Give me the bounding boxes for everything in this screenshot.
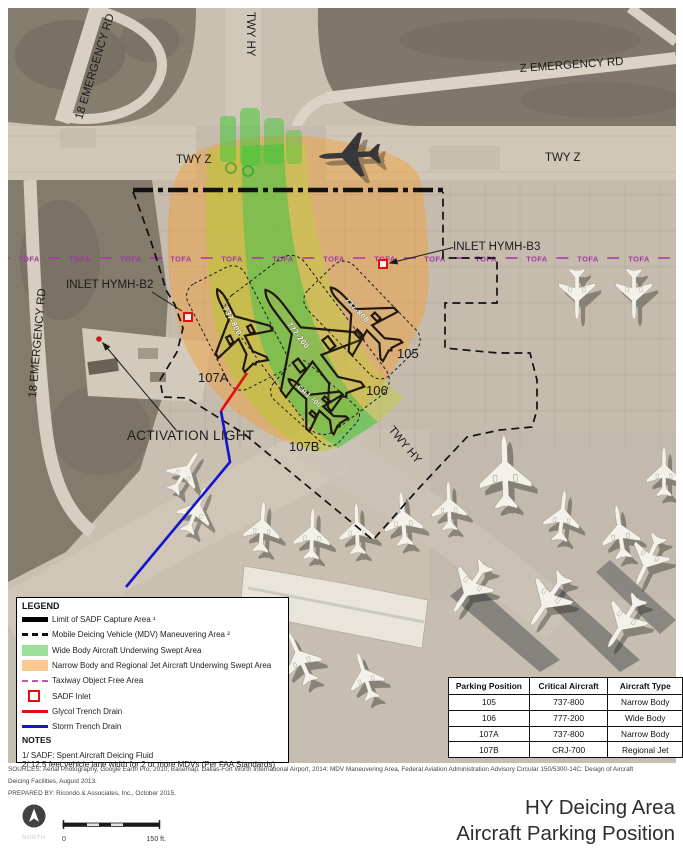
narrowbody-fill-swatch [22,660,48,671]
table-cell: 737-800 [529,695,608,711]
legend-item-label: Limit of SADF Capture Area ¹ [52,615,156,624]
sadf-inlet-b3 [379,260,387,268]
legend-item-label: SADF Inlet [52,692,91,701]
tofa-label: TOFA [475,255,497,264]
map-title: HY Deicing Area Aircraft Parking Positio… [456,795,675,847]
sadf-inlet-b2 [184,313,192,321]
parking-table: Parking PositionCritical AircraftAircraf… [448,677,683,758]
table-cell: Narrow Body [608,695,683,711]
sources-line-1: SOURCES: Aerial Photography, Google Eart… [8,764,633,776]
table-cell: Narrow Body [608,726,683,742]
table-cell: 107B [449,742,530,758]
storm-line-swatch [22,725,48,728]
legend-item-label: Glycol Trench Drain [52,707,122,716]
legend-item: Wide Body Aircraft Underwing Swept Area [22,643,283,658]
table-row: 107A737-800Narrow Body [449,726,683,742]
legend-item-label: Wide Body Aircraft Underwing Swept Area [52,646,201,655]
sources-line-2: Deicing Facilities, August 2013. [8,776,633,788]
tofa-label: TOFA [221,255,243,264]
legend-items: Limit of SADF Capture Area ¹Mobile Deici… [22,612,283,734]
table-row: 106777-200Wide Body [449,710,683,726]
table-header: Critical Aircraft [529,678,608,695]
road-label-twy-z-right: TWY Z [545,152,581,164]
notes-title: NOTES [22,735,283,745]
parking-label-107b: 107B [289,439,319,454]
scale-bar: 0 150 ft. [62,817,166,846]
glycol-line-swatch [22,710,48,713]
note-line: 1/ SADF: Spent Aircraft Deicing Fluid [22,751,283,760]
legend-item: Taxiway Object Free Area [22,673,283,688]
activation-light-marker [96,336,102,342]
table-cell: 106 [449,710,530,726]
tofa-label: TOFA [120,255,142,264]
legend-item-label: Narrow Body and Regional Jet Aircraft Un… [52,661,271,670]
road-label-twy-z-left: TWY Z [176,154,212,166]
table-header: Parking Position [449,678,530,695]
sadf-inlet-swatch [28,690,40,702]
legend-item: Limit of SADF Capture Area ¹ [22,612,283,627]
scale-bar-icon [62,820,162,830]
legend-item-label: Mobile Deicing Vehicle (MDV) Maneuvering… [52,630,230,639]
north-label: NORTH [20,835,48,841]
legend-box: LEGEND Limit of SADF Capture Area ¹Mobil… [16,597,289,763]
legend-title: LEGEND [22,601,283,611]
table-cell: Regional Jet [608,742,683,758]
legend-item-label: Taxiway Object Free Area [52,676,143,685]
legend-item: Storm Trench Drain [22,719,283,734]
north-arrow-icon [20,803,48,830]
map-figure-page: TOFATOFATOFATOFATOFATOFATOFATOFATOFATOFA… [0,0,683,850]
tofa-label: TOFA [526,255,548,264]
tofa-label: TOFA [323,255,345,264]
inlet-b2-label: INLET HYMH-B2 [66,279,153,291]
parking-label-105: 105 [397,346,419,361]
table-cell: 737-800 [529,726,608,742]
mdv-dashed-line-swatch [22,633,48,636]
legend-item: Glycol Trench Drain [22,704,283,719]
map-title-line-1: HY Deicing Area [456,795,675,821]
table-cell: 777-200 [529,710,608,726]
inlet-b3-label: INLET HYMH-B3 [453,241,540,253]
scale-max-label: 150 ft. [147,836,166,843]
table-row: 105737-800Narrow Body [449,695,683,711]
road-label-twy-hy-top: TWY HY [244,12,256,57]
legend-item: Narrow Body and Regional Jet Aircraft Un… [22,658,283,673]
table-cell: 107A [449,726,530,742]
table-cell: Wide Body [608,710,683,726]
tofa-label: TOFA [577,255,599,264]
parking-label-107a: 107A [198,370,229,385]
tofa-label: TOFA [272,255,294,264]
sadf-limit-line-swatch [22,617,48,622]
tofa-label: TOFA [69,255,91,264]
legend-item: Mobile Deicing Vehicle (MDV) Maneuvering… [22,627,283,642]
table-cell: CRJ-700 [529,742,608,758]
legend-item-label: Storm Trench Drain [52,722,121,731]
north-arrow: NORTH [20,803,48,841]
map-title-line-2: Aircraft Parking Position [456,821,675,847]
tofa-label: TOFA [18,255,40,264]
widebody-fill-swatch [22,645,48,656]
tofa-label: TOFA [628,255,650,264]
activation-light-label: ACTIVATION LIGHT [127,428,254,443]
table-row: 107BCRJ-700Regional Jet [449,742,683,758]
legend-item: SADF Inlet [22,688,283,703]
tofa-label: TOFA [170,255,192,264]
table-header: Aircraft Type [608,678,683,695]
parking-label-106: 106 [366,383,388,398]
scale-zero-label: 0 [62,836,66,843]
table-cell: 105 [449,695,530,711]
tofa-line-swatch [22,680,48,682]
